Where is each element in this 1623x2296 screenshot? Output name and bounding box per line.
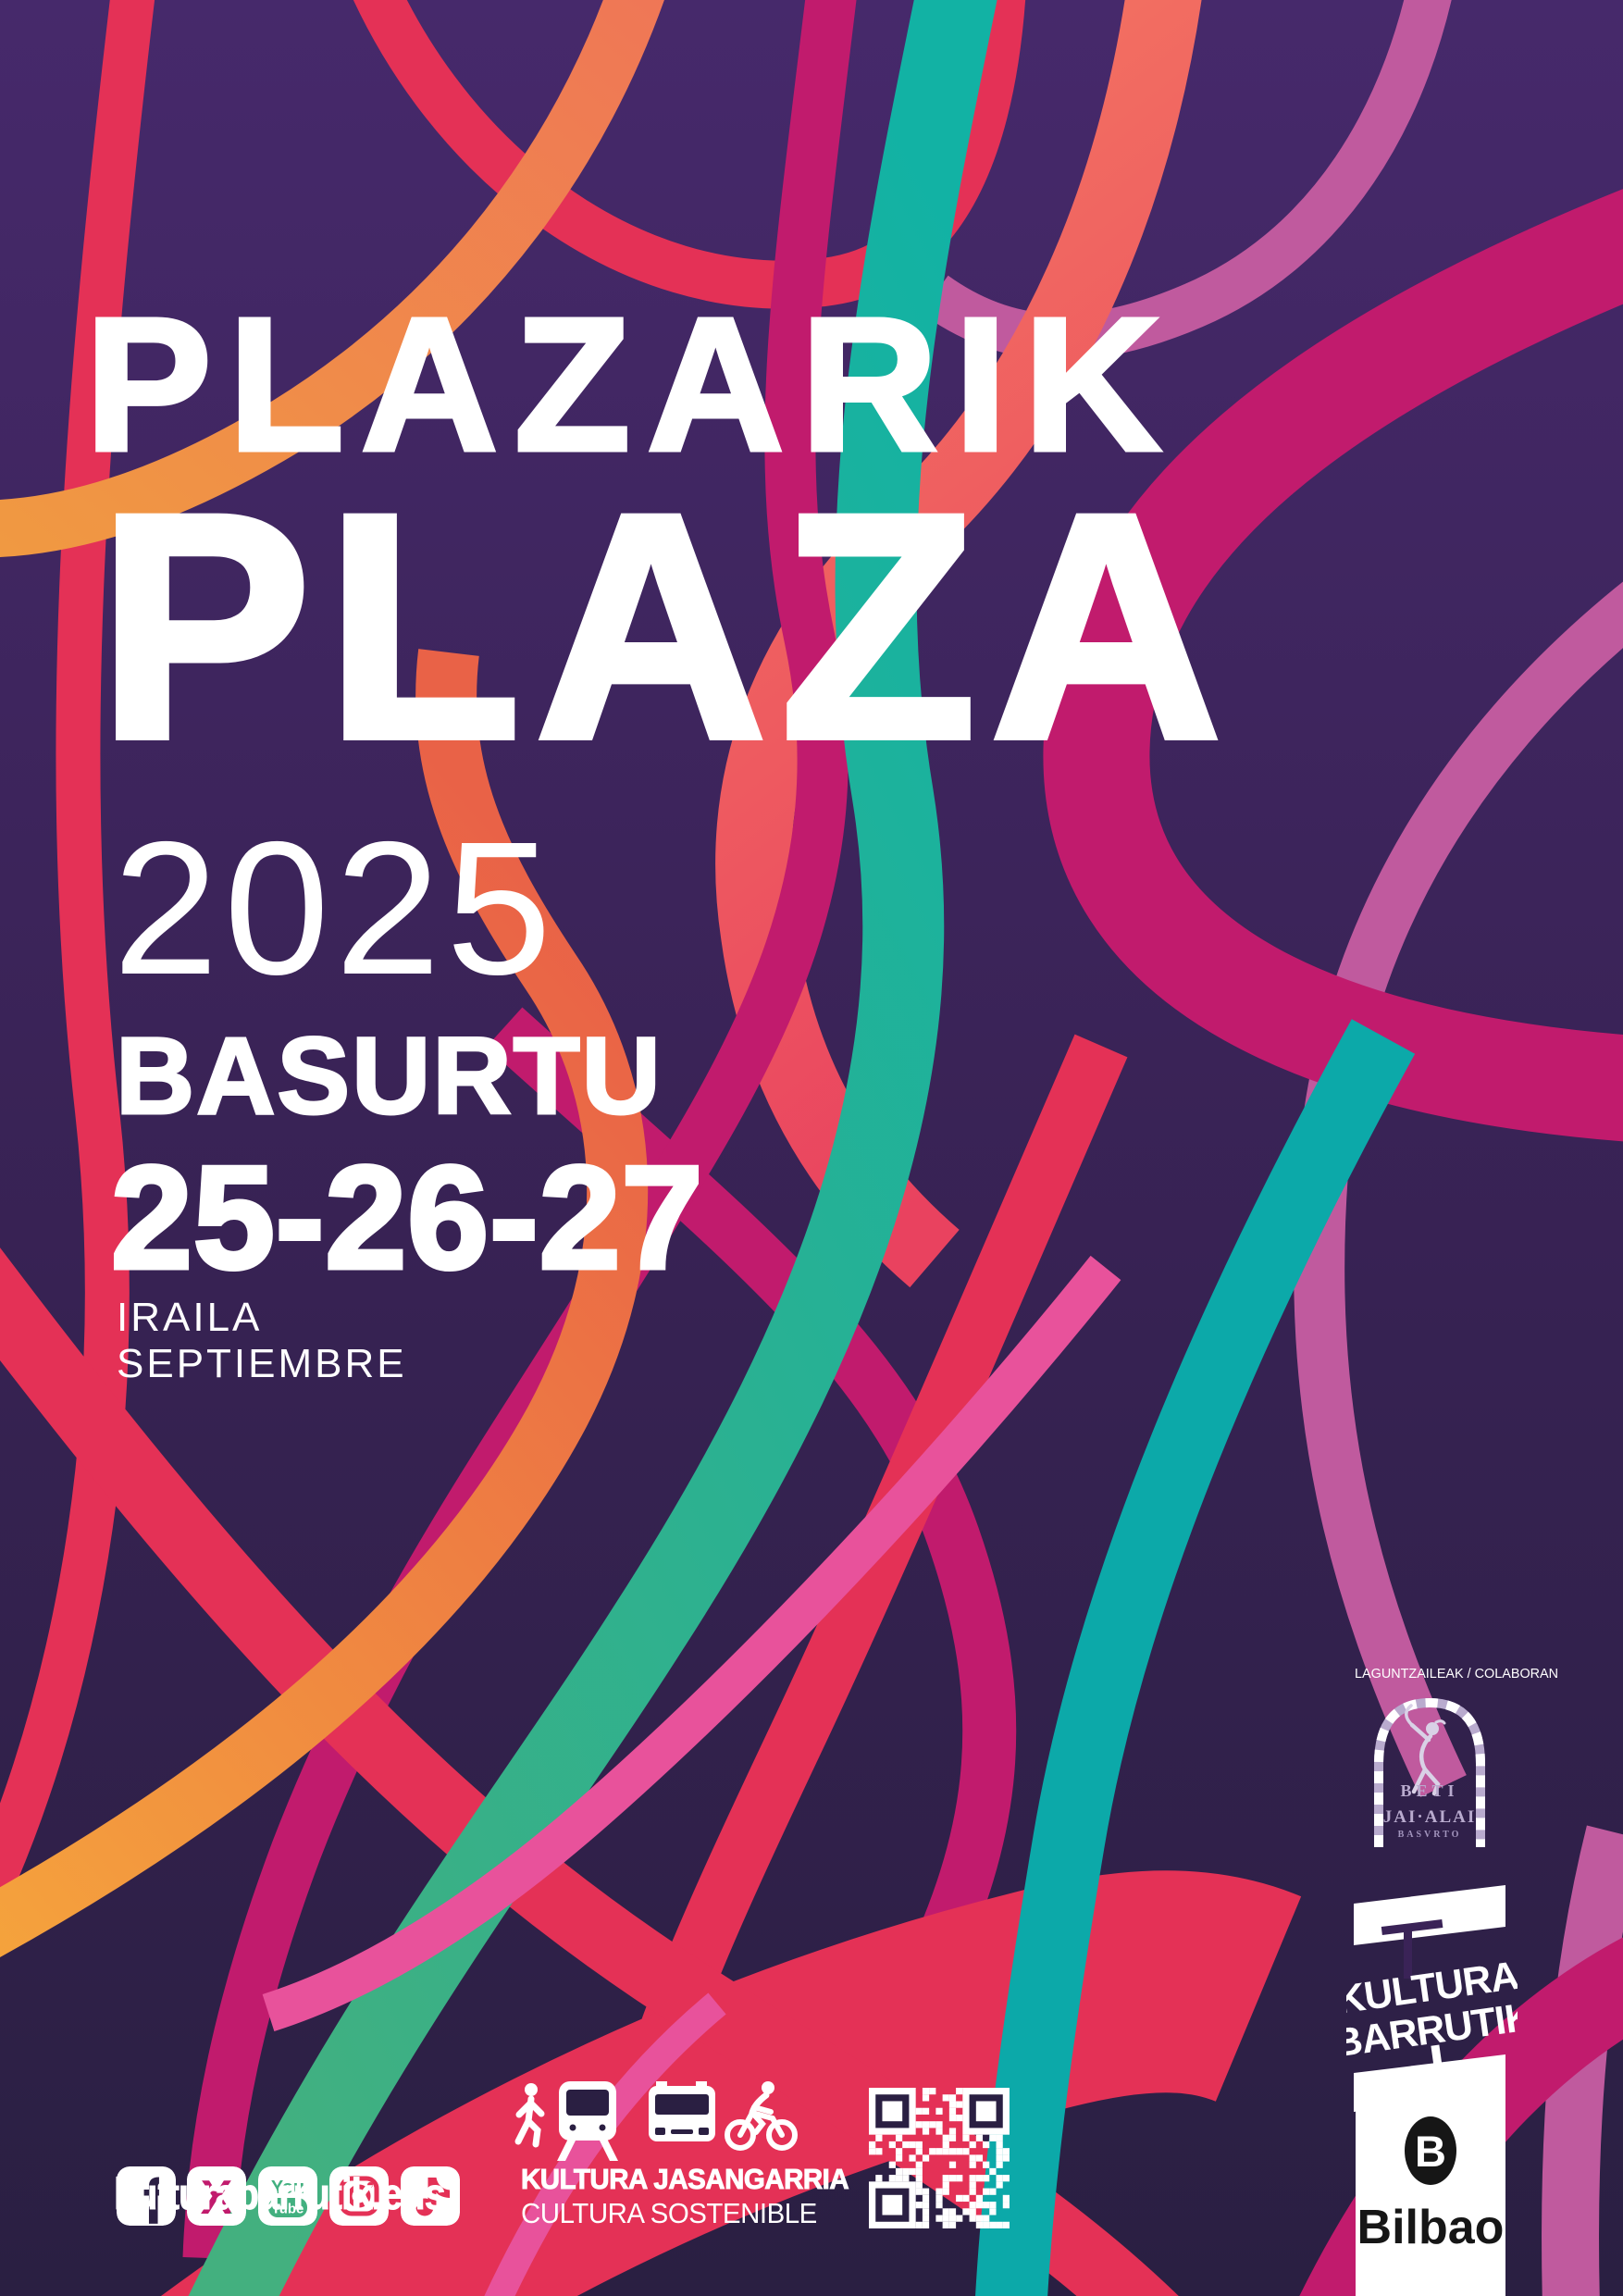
pedestrian-icon (518, 2083, 541, 2144)
poster-dates: 25-26-27 (111, 1145, 703, 1291)
logo-top-band (1354, 1885, 1505, 1945)
train-icon (557, 2081, 618, 2161)
poster-month-spanish: SEPTIEMBRE (117, 1344, 407, 1384)
sustainability-basque: KULTURA JASANGARRIA (521, 2165, 849, 2193)
beti-text: BETI (1400, 1781, 1458, 1800)
instagram-icon (328, 2165, 390, 2228)
bicycle-icon (727, 2081, 795, 2148)
x-twitter-icon: X (185, 2165, 248, 2228)
bus-icon (649, 2081, 715, 2141)
poster-title-line2: PLAZA (98, 467, 1236, 787)
poster-year: 2025 (113, 813, 557, 1003)
bilbao-initial: B (1415, 2127, 1446, 2176)
kultura-barrutik-bilbao-logo: KULTURA BARRUTIK B Bilbao (1346, 1879, 1518, 2296)
beti-jai-alai-logo: BETI JAI·ALAI BASVRTO (1368, 1692, 1492, 1851)
bilbao-name: Bilbao (1357, 2201, 1505, 2254)
youtube-icon: You Tube (256, 2165, 319, 2228)
poster-month-basque: IRAILA (117, 1297, 262, 1338)
sustainability-spanish: CULTURA SOSTENIBLE (521, 2199, 817, 2228)
basurto-text: BASVRTO (1398, 1830, 1462, 1840)
ribbon (1319, 574, 1623, 1786)
tiktok-icon (399, 2165, 462, 2228)
pelotari-figure (1406, 1706, 1444, 1793)
poster: PLAZARIK PLAZA 2025 BASURTU 25-26-27 IRA… (0, 0, 1623, 2296)
facebook-icon: f (115, 2165, 178, 2228)
jai-alai-text: JAI·ALAI (1383, 1807, 1476, 1827)
mobility-icons (511, 2079, 798, 2165)
poster-place: BASURTU (116, 1022, 663, 1131)
sponsors-label: LAGUNTZAILEAK / COLABORAN (1355, 1667, 1558, 1681)
qr-code (869, 2088, 1010, 2228)
youtube-tube-text: Tube (272, 2202, 304, 2217)
